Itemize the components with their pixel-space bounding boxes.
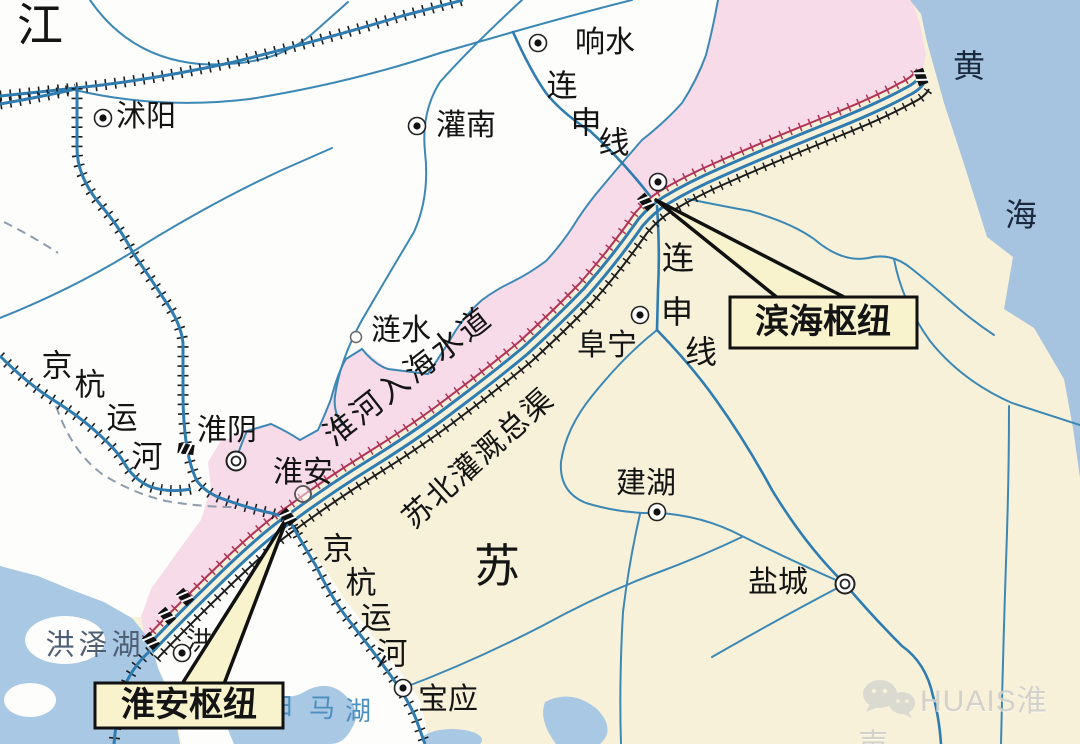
wechat-icon: [858, 676, 920, 720]
binhai-hub-label: 滨海枢纽: [755, 306, 891, 340]
svg-text:湖: 湖: [345, 697, 371, 726]
city-label-jianhu: 建湖: [616, 469, 676, 499]
lianshen-south-char-lian: 连: [662, 242, 694, 274]
map-screenshot: 洪 白 马 湖: [0, 0, 1080, 744]
city-label-huaian: 淮安: [273, 458, 333, 488]
grand-canal-upper-char-jing: 京: [42, 351, 73, 382]
baoying-marker: [395, 680, 412, 697]
grand-canal-upper-char-yun: 运: [107, 403, 138, 434]
city-label-shuyang: 沭阳: [116, 102, 176, 132]
lianshen-south-char-shen: 申: [661, 296, 693, 328]
guannan-marker: [409, 118, 426, 135]
svg-text:马: 马: [309, 694, 335, 723]
city-label-guannan: 灌南: [436, 111, 496, 141]
yellow-sea-label-huang: 黄: [953, 50, 985, 82]
city-label-yancheng: 盐城: [748, 568, 808, 598]
city-label-xiangshui: 响水: [575, 28, 635, 58]
huaiyin-marker: [227, 452, 246, 471]
hong-marker: [174, 645, 191, 662]
jianhu-marker: [649, 504, 666, 521]
province-label-jiang: 江: [17, 3, 63, 49]
grand-canal-lower-char-he: 河: [377, 639, 408, 670]
binhai-marker: [650, 174, 667, 191]
lianshui-marker: [351, 332, 362, 343]
grand-canal-lower-char-jing: 京: [323, 534, 354, 565]
watermark: HUAIS淮声: [858, 676, 1068, 720]
yancheng-marker: [836, 575, 855, 594]
lianshen-south-char-xian: 线: [685, 336, 717, 368]
xiangshui-marker: [530, 35, 547, 52]
grand-canal-upper-char-hang: 杭: [75, 370, 106, 401]
city-label-funing: 阜宁: [577, 331, 637, 361]
city-label-huaiyin: 淮阴: [197, 416, 257, 446]
grand-canal-lower-char-hang: 杭: [346, 568, 377, 599]
grand-canal-lower-char-yun: 运: [361, 603, 392, 634]
province-label-su: 苏: [474, 544, 520, 590]
yellow-sea-label-hai: 海: [1005, 199, 1037, 231]
grand-canal-upper-char-he: 河: [132, 442, 163, 473]
lianshen-north-char-shen: 申: [571, 108, 602, 139]
city-label-baoying: 宝应: [418, 685, 478, 715]
shuyang-marker: [95, 110, 112, 127]
lianshen-north-char-lian: 连: [547, 71, 578, 102]
funing-marker: [632, 307, 649, 324]
hongze-lake-label: 洪泽湖: [45, 632, 144, 661]
lianshen-north-char-xian: 线: [599, 128, 630, 159]
huaian-hub-label: 淮安枢纽: [121, 689, 257, 723]
